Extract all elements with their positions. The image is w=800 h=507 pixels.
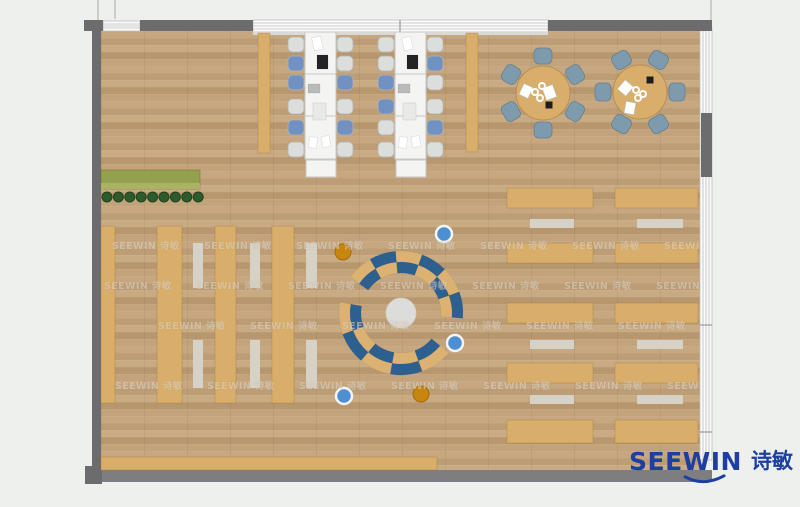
reading-bench-segment bbox=[392, 351, 418, 364]
stool-orange bbox=[413, 386, 429, 402]
study-bench-mat bbox=[637, 340, 683, 349]
wall-right-pier bbox=[701, 113, 712, 177]
study-desk bbox=[507, 243, 593, 263]
wall-top-1 bbox=[140, 20, 253, 31]
study-bench-mat bbox=[530, 219, 574, 228]
reading-circle-rug bbox=[386, 298, 416, 328]
bookshelf-row bbox=[272, 226, 294, 403]
desk-chair-blue bbox=[427, 56, 443, 71]
wall-bottom bbox=[88, 470, 712, 482]
reading-bench-segment bbox=[397, 262, 419, 275]
desk-chair-blue bbox=[427, 120, 443, 135]
aisle-mat bbox=[306, 243, 317, 288]
desk-chair-blue bbox=[337, 75, 353, 90]
desk-chair-gray bbox=[427, 75, 443, 90]
table-black-item bbox=[647, 77, 654, 84]
aisle-mat bbox=[250, 340, 260, 388]
aisle-mat bbox=[306, 340, 317, 388]
stool-blue bbox=[436, 226, 452, 242]
desk-item bbox=[407, 55, 418, 69]
desk-chair-gray bbox=[288, 142, 304, 157]
desk-chair-gray bbox=[427, 37, 443, 52]
round-table-chair bbox=[534, 48, 552, 64]
exterior-line bbox=[114, 0, 116, 19]
bookshelf-row bbox=[157, 226, 182, 403]
plant bbox=[170, 192, 180, 202]
desk-chair-gray bbox=[337, 56, 353, 71]
desk-chair-gray bbox=[337, 99, 353, 114]
desk-chair-blue bbox=[378, 99, 394, 114]
side-bench bbox=[466, 33, 478, 152]
study-desk bbox=[615, 243, 698, 263]
floor-plan: SEEWIN 诗敏SEEWIN 诗敏SEEWIN 诗敏SEEWIN 诗敏SEEW… bbox=[0, 0, 800, 507]
desk-item bbox=[411, 135, 421, 147]
exterior-line bbox=[97, 0, 99, 21]
end-table bbox=[396, 160, 426, 177]
plant bbox=[148, 192, 158, 202]
desk-chair-blue bbox=[288, 56, 304, 71]
desk-chair-gray bbox=[288, 37, 304, 52]
side-bench bbox=[258, 33, 270, 153]
desk-item bbox=[398, 84, 410, 93]
study-bench-mat bbox=[530, 340, 574, 349]
stool-blue bbox=[336, 388, 352, 404]
desk-chair-gray bbox=[337, 142, 353, 157]
planter-box-face bbox=[101, 183, 200, 189]
study-bench-mat bbox=[637, 395, 683, 404]
desk-item bbox=[317, 55, 328, 69]
plant bbox=[113, 192, 123, 202]
wall-left bbox=[92, 20, 101, 472]
aisle-mat bbox=[193, 340, 203, 388]
study-desk bbox=[507, 420, 593, 443]
aisle-mat bbox=[193, 243, 203, 288]
bookshelf-row bbox=[101, 226, 115, 403]
desk-chair-gray bbox=[337, 37, 353, 52]
plant bbox=[182, 192, 192, 202]
desk-chair-blue bbox=[378, 75, 394, 90]
table-paper bbox=[624, 101, 636, 115]
stool-blue bbox=[447, 335, 463, 351]
brand-logo: SEEWIN 诗敏 bbox=[629, 449, 793, 489]
bookshelf-row bbox=[215, 226, 236, 403]
floor-plan-graphics bbox=[0, 0, 800, 507]
study-desk bbox=[615, 188, 698, 208]
reading-bench-segment bbox=[350, 304, 363, 330]
study-desk bbox=[615, 420, 698, 443]
desk-chair-blue bbox=[288, 75, 304, 90]
logo-text-zh: 诗敏 bbox=[751, 451, 793, 472]
wall-bottom-left-corner bbox=[85, 466, 102, 484]
study-bench-mat bbox=[637, 219, 683, 228]
plant bbox=[159, 192, 169, 202]
aisle-mat bbox=[250, 243, 260, 288]
study-desk bbox=[507, 363, 593, 383]
plant bbox=[125, 192, 135, 202]
logo-text-en: SEEWIN bbox=[629, 449, 742, 474]
desk-item bbox=[403, 103, 416, 120]
reading-bench-segment bbox=[439, 296, 452, 318]
desk-chair-gray bbox=[378, 142, 394, 157]
desk-item bbox=[308, 136, 317, 148]
desk-item bbox=[321, 135, 331, 147]
table-black-item bbox=[546, 102, 553, 109]
round-table-chair bbox=[669, 83, 685, 101]
desk-chair-blue bbox=[337, 120, 353, 135]
study-desk bbox=[615, 363, 698, 383]
round-table-chair bbox=[534, 122, 552, 138]
desk-chair-gray bbox=[427, 142, 443, 157]
plant bbox=[102, 192, 112, 202]
logo-swoosh-path bbox=[685, 476, 724, 482]
plant bbox=[193, 192, 203, 202]
desk-item bbox=[398, 136, 407, 148]
logo-swoosh-icon bbox=[682, 474, 729, 487]
study-desk bbox=[507, 303, 593, 323]
desk-item bbox=[308, 84, 320, 93]
desk-chair-blue bbox=[288, 120, 304, 135]
bottom-bench bbox=[101, 457, 437, 470]
wall-top-2 bbox=[548, 20, 712, 31]
desk-chair-gray bbox=[378, 37, 394, 52]
desk-chair-gray bbox=[378, 56, 394, 71]
study-desk bbox=[507, 188, 593, 208]
round-table-chair bbox=[595, 83, 611, 101]
study-bench-mat bbox=[530, 395, 574, 404]
exterior-line bbox=[710, 0, 712, 20]
desk-chair-gray bbox=[378, 120, 394, 135]
plant bbox=[136, 192, 146, 202]
end-table bbox=[306, 160, 336, 177]
study-desk bbox=[615, 303, 698, 323]
desk-chair-gray bbox=[288, 99, 304, 114]
desk-chair-gray bbox=[427, 99, 443, 114]
desk-item bbox=[313, 103, 326, 120]
stool-orange bbox=[335, 244, 351, 260]
